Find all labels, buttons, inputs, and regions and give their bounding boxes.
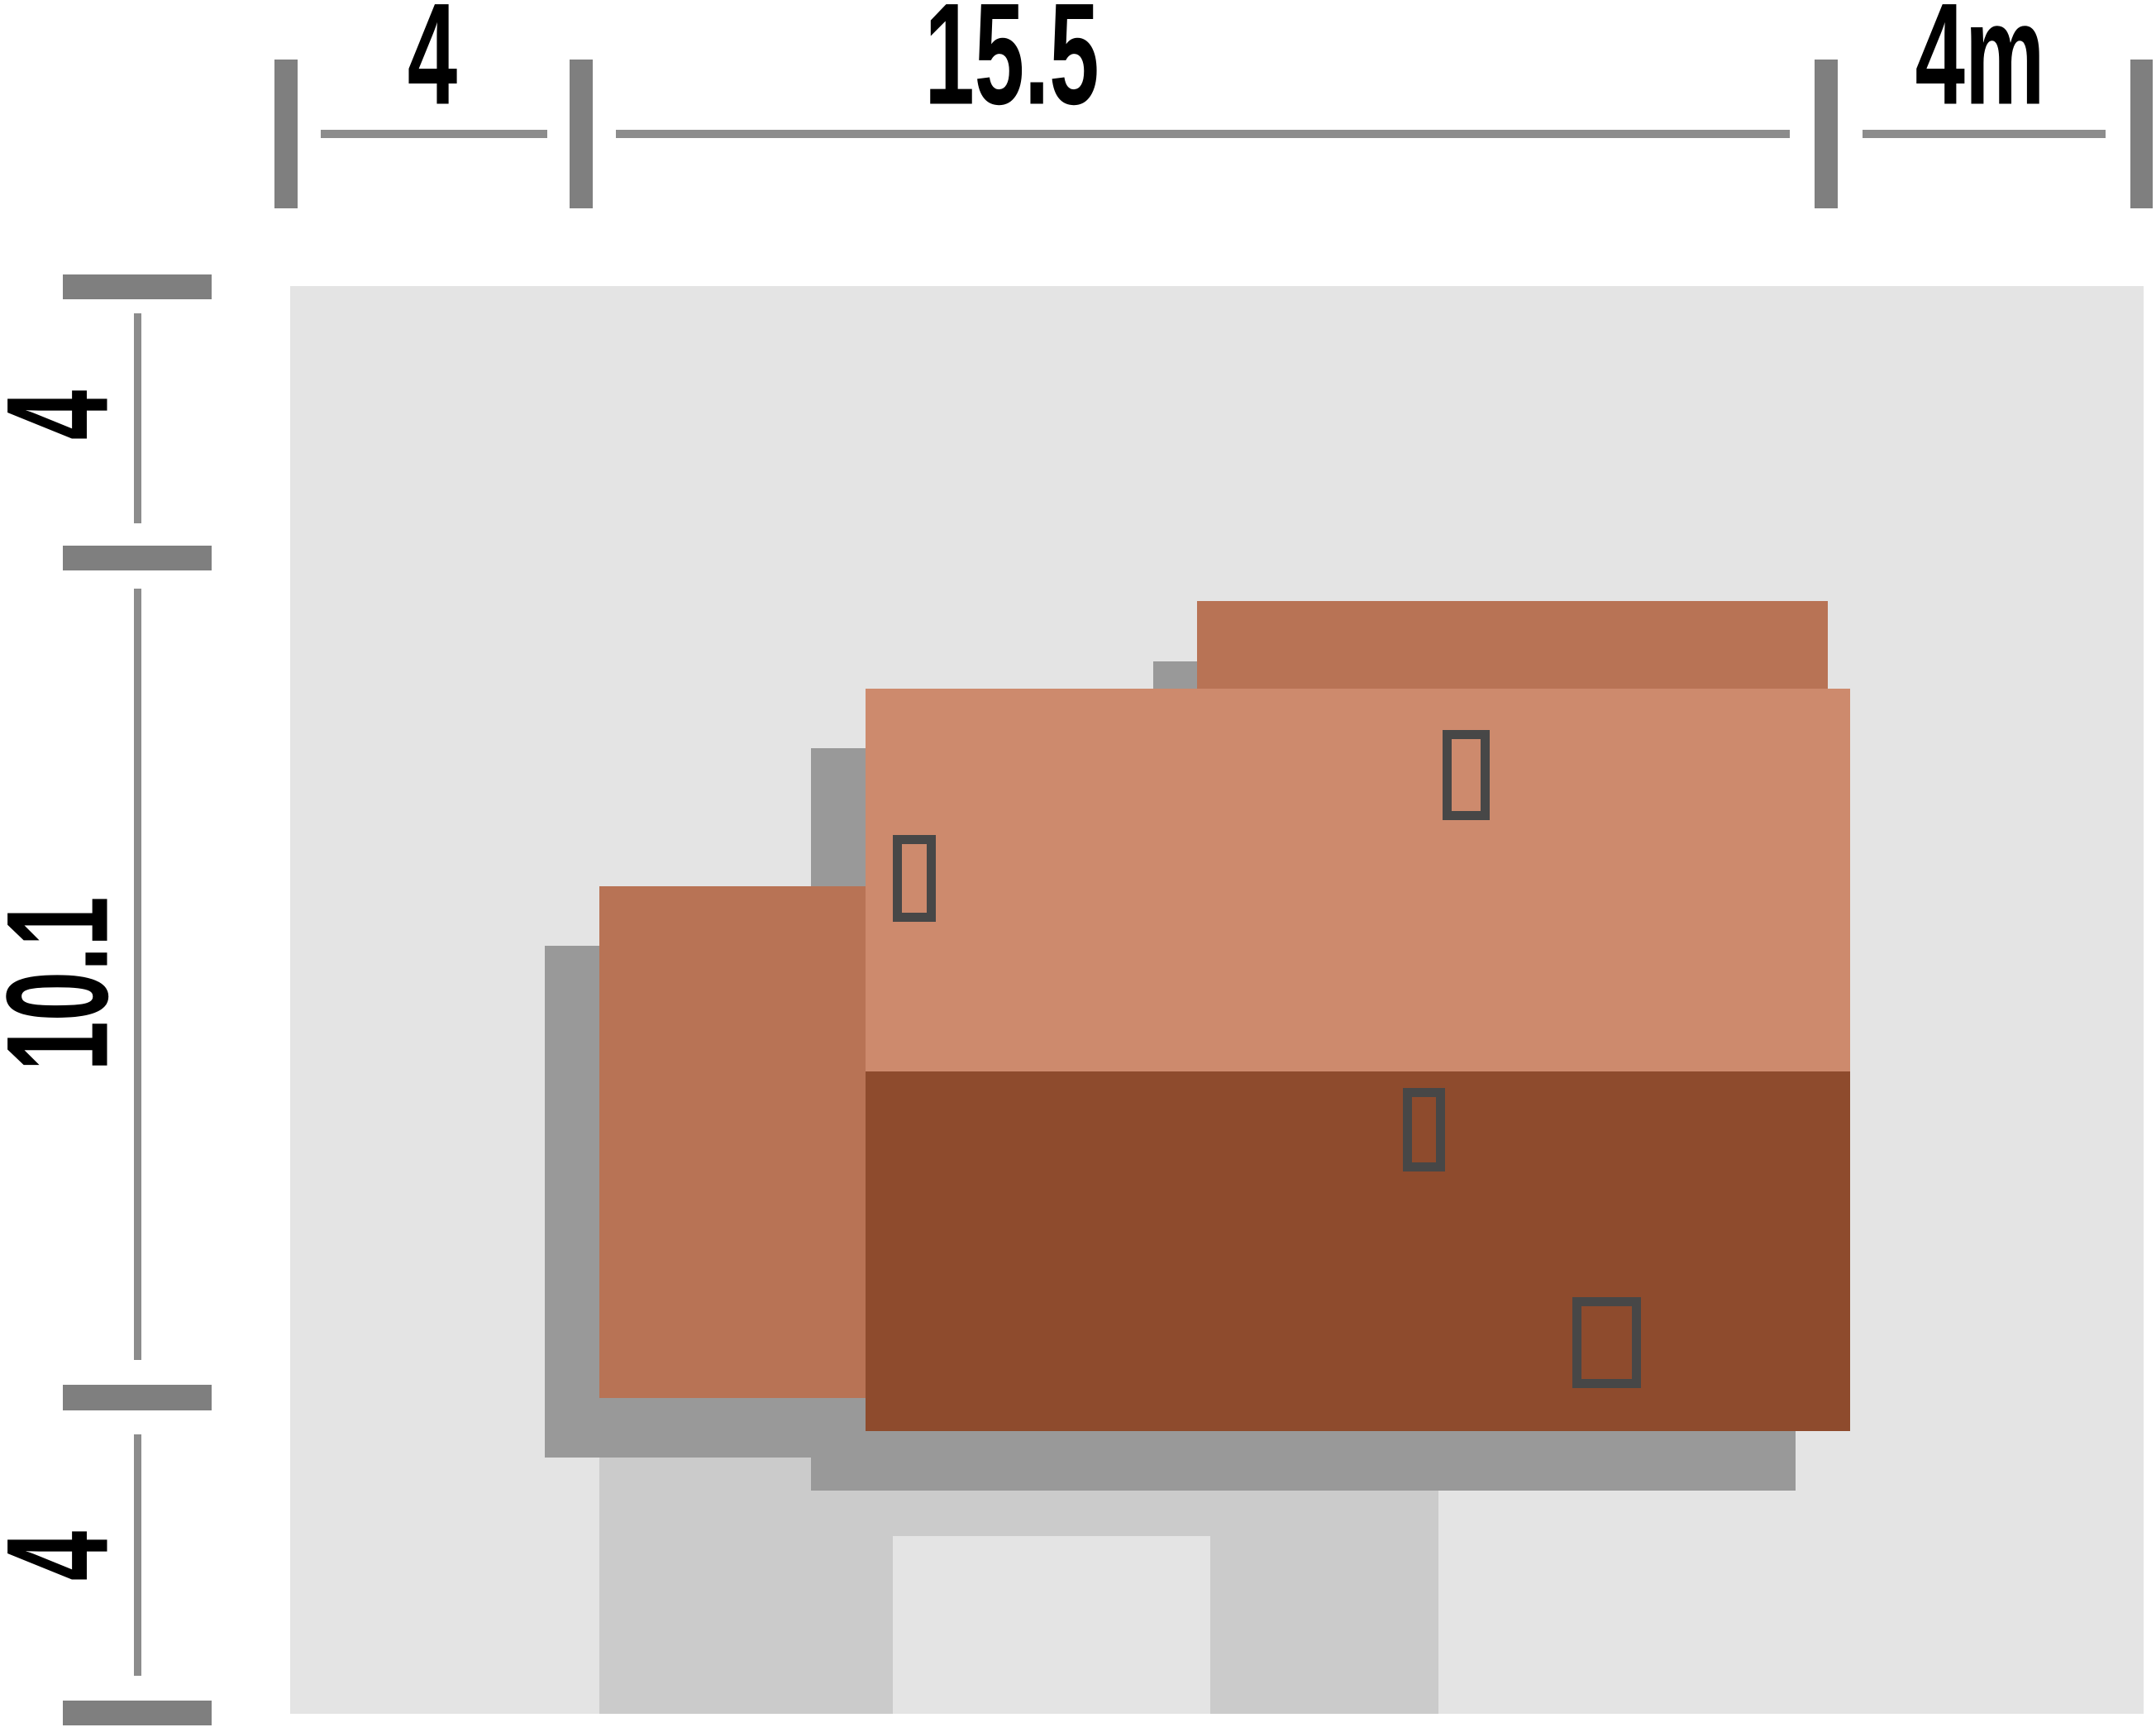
dim-tick-top-0 — [274, 60, 298, 208]
dim-line-top-2 — [1863, 130, 2106, 138]
driveway-right — [1210, 1536, 1438, 1714]
chimney-1 — [893, 835, 936, 922]
chimney-2 — [1443, 730, 1490, 820]
dim-tick-left-1 — [63, 546, 212, 570]
dim-tick-left-0 — [63, 274, 212, 299]
dim-tick-top-3 — [2130, 60, 2153, 208]
chimney-4 — [1572, 1297, 1641, 1388]
dim-tick-top-1 — [570, 60, 593, 208]
dim-line-left-1 — [134, 589, 141, 1360]
site-plan-diagram: 4 15.5 4m 4 10.1 4 — [0, 0, 2156, 1732]
dim-line-top-1 — [616, 130, 1790, 138]
dim-tick-left-2 — [63, 1385, 212, 1410]
dim-tick-top-2 — [1815, 60, 1838, 208]
dim-line-left-0 — [134, 313, 141, 523]
garage-roof — [599, 886, 866, 1398]
dim-line-top-0 — [321, 130, 547, 138]
driveway-left — [599, 1457, 893, 1714]
dim-line-left-2 — [134, 1434, 141, 1676]
chimney-3 — [1403, 1088, 1445, 1171]
driveway-band — [893, 1491, 1438, 1536]
dim-tick-left-3 — [63, 1701, 212, 1725]
main-roof-upper-slope — [866, 689, 1850, 1071]
main-roof-lower-slope — [866, 1071, 1850, 1431]
roof-ridge-strip — [1197, 601, 1828, 689]
ridge-shadow-notch — [1153, 661, 1197, 689]
